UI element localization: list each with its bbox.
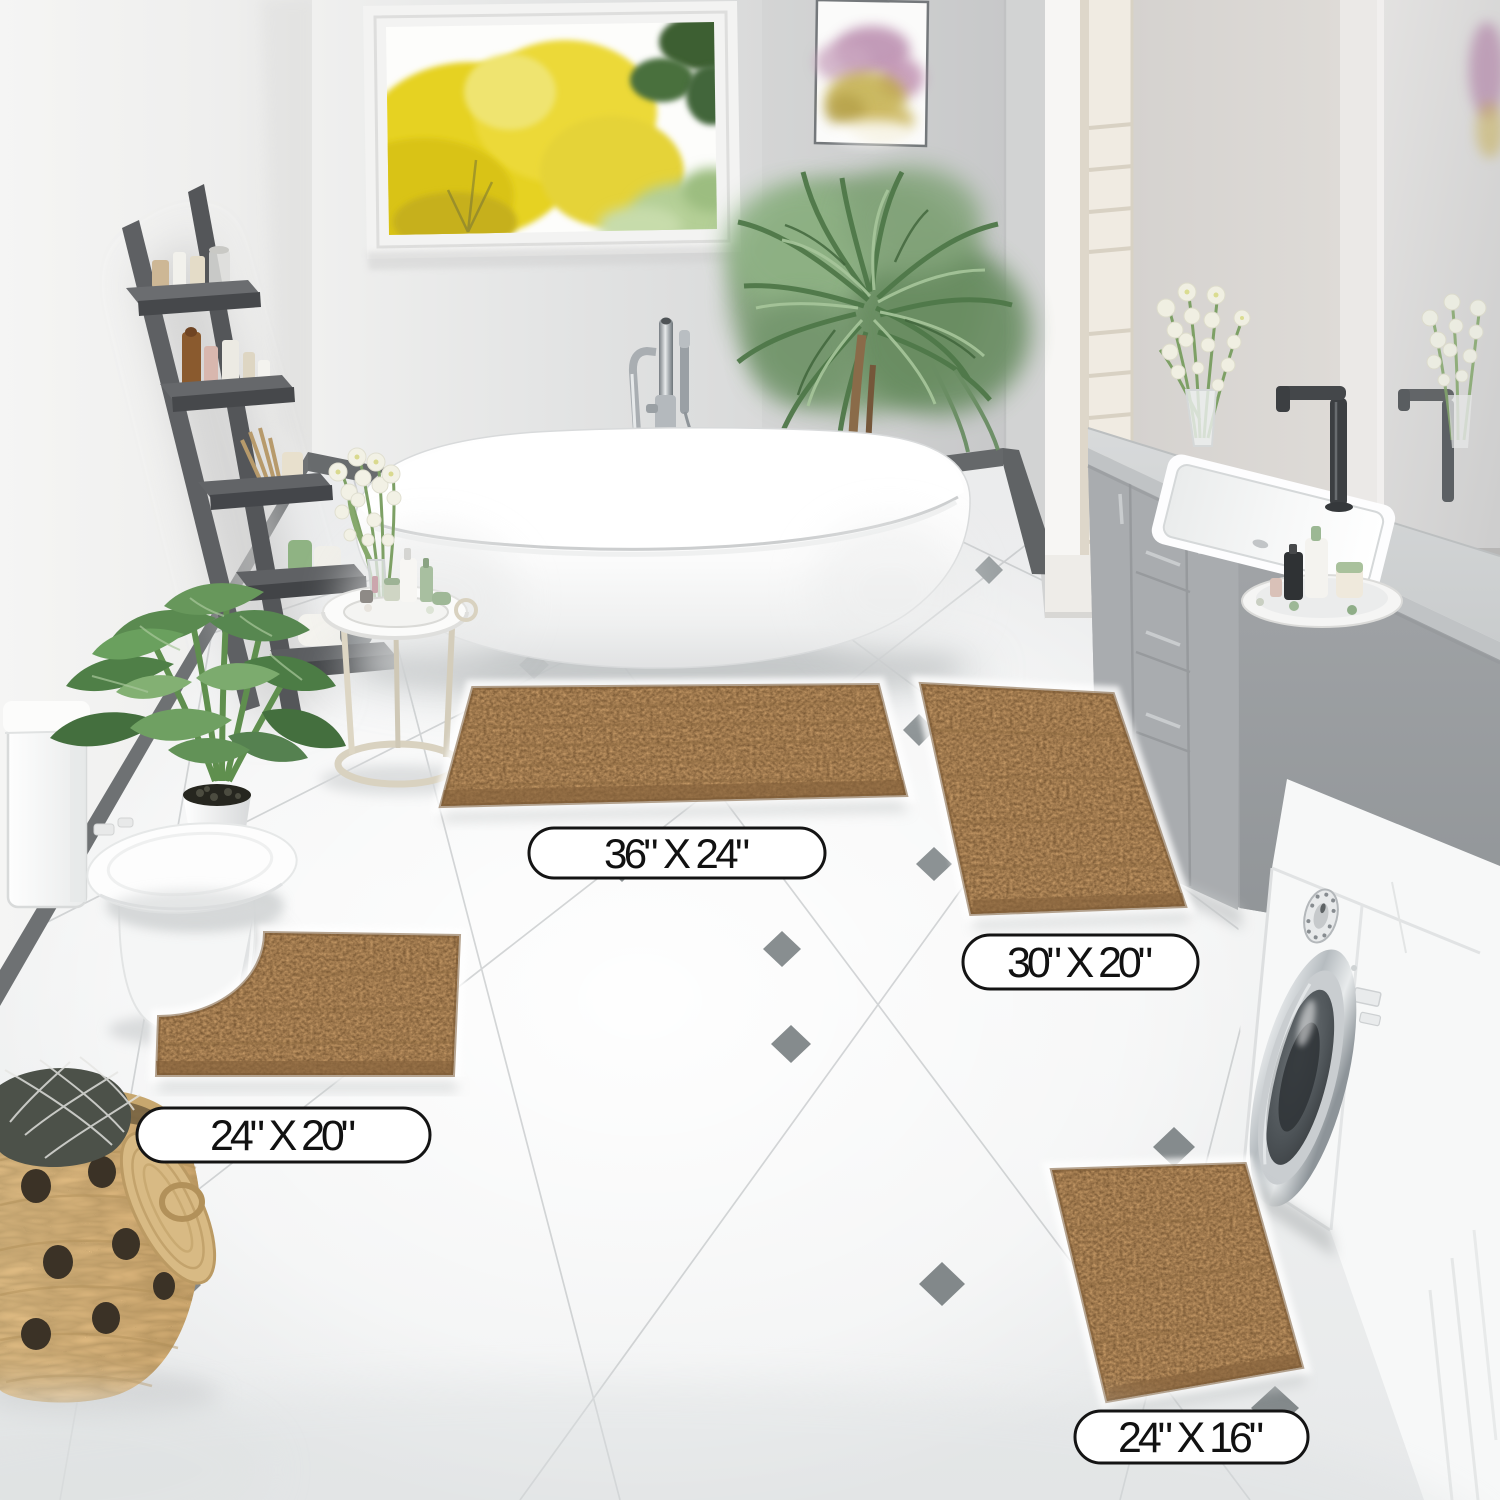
svg-text:30" X 20": 30" X 20" xyxy=(1007,939,1153,987)
svg-text:24" X 20": 24" X 20" xyxy=(210,1112,356,1160)
svg-text:36" X 24": 36" X 24" xyxy=(604,830,750,877)
svg-text:24" X 16": 24" X 16" xyxy=(1118,1414,1264,1462)
